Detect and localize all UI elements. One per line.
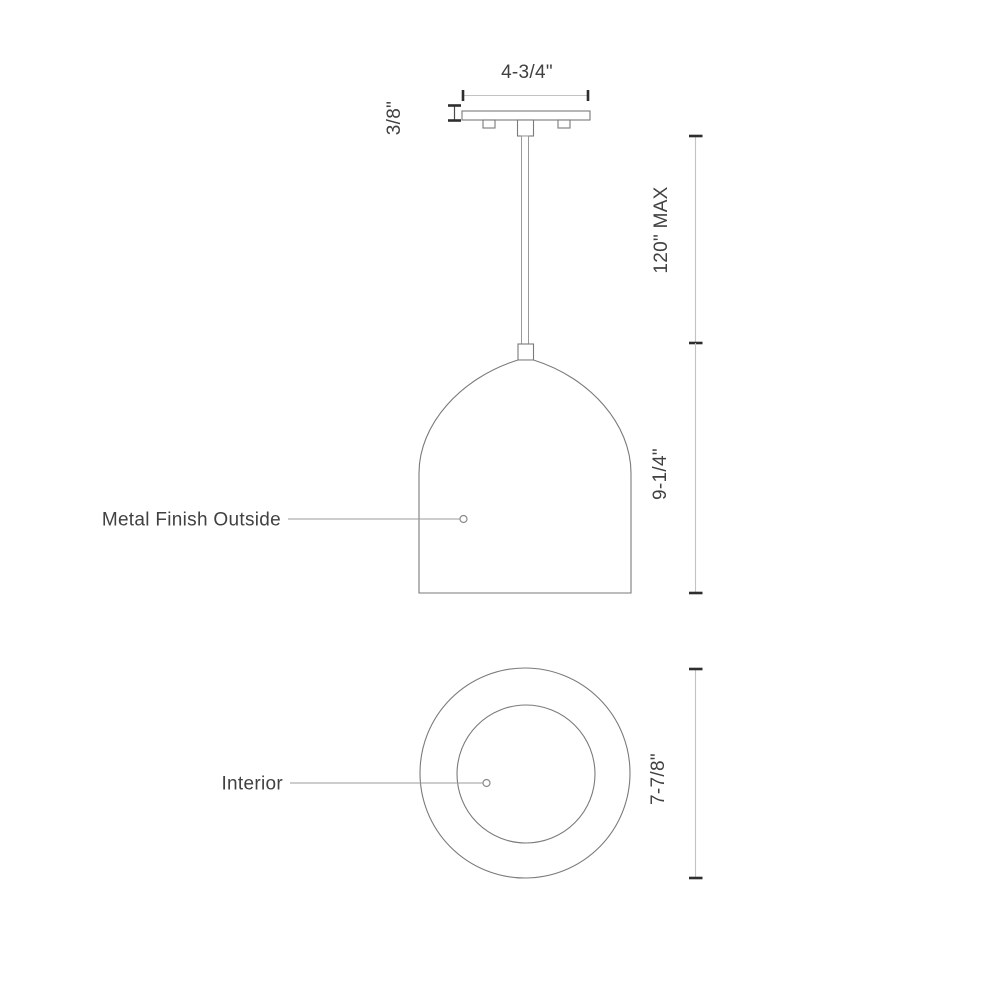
topview-inner-circle (457, 705, 595, 843)
interior-callout: Interior (221, 774, 490, 795)
suspension-rod (522, 136, 529, 344)
canopy-thickness-dimension: 3/8" (384, 101, 461, 135)
canopy-screw-right (558, 120, 570, 128)
topview-outer-circle (420, 668, 630, 878)
shade-height-dimension: 9-1/4" (650, 343, 703, 593)
finish-callout: Metal Finish Outside (102, 510, 467, 531)
canopy (462, 111, 590, 136)
front-view: 4-3/4" 3/8" (102, 62, 703, 593)
shade-height-label: 9-1/4" (650, 448, 671, 500)
shade-outline (419, 360, 631, 593)
interior-diameter-label: 7-7/8" (648, 753, 669, 805)
finish-leader-dot (460, 516, 467, 523)
finish-callout-label: Metal Finish Outside (102, 510, 281, 531)
pendant-dimension-diagram: 4-3/4" 3/8" (0, 0, 1000, 1000)
shade-connector (518, 344, 534, 360)
canopy-width-dimension: 4-3/4" (463, 62, 588, 101)
canopy-width-label: 4-3/4" (501, 62, 553, 83)
suspension-length-dimension: 120" MAX (651, 136, 703, 343)
top-view: Interior 7-7/8" (221, 668, 702, 878)
interior-leader-dot (483, 780, 490, 787)
canopy-thickness-label: 3/8" (384, 101, 405, 135)
interior-callout-label: Interior (221, 774, 283, 795)
drawing-canvas: 4-3/4" 3/8" (0, 0, 1000, 1000)
canopy-stem-hub (518, 120, 534, 136)
interior-diameter-dimension: 7-7/8" (648, 669, 703, 878)
canopy-screw-left (483, 120, 495, 128)
suspension-max-label: 120" MAX (651, 186, 672, 273)
canopy-plate (462, 111, 590, 120)
